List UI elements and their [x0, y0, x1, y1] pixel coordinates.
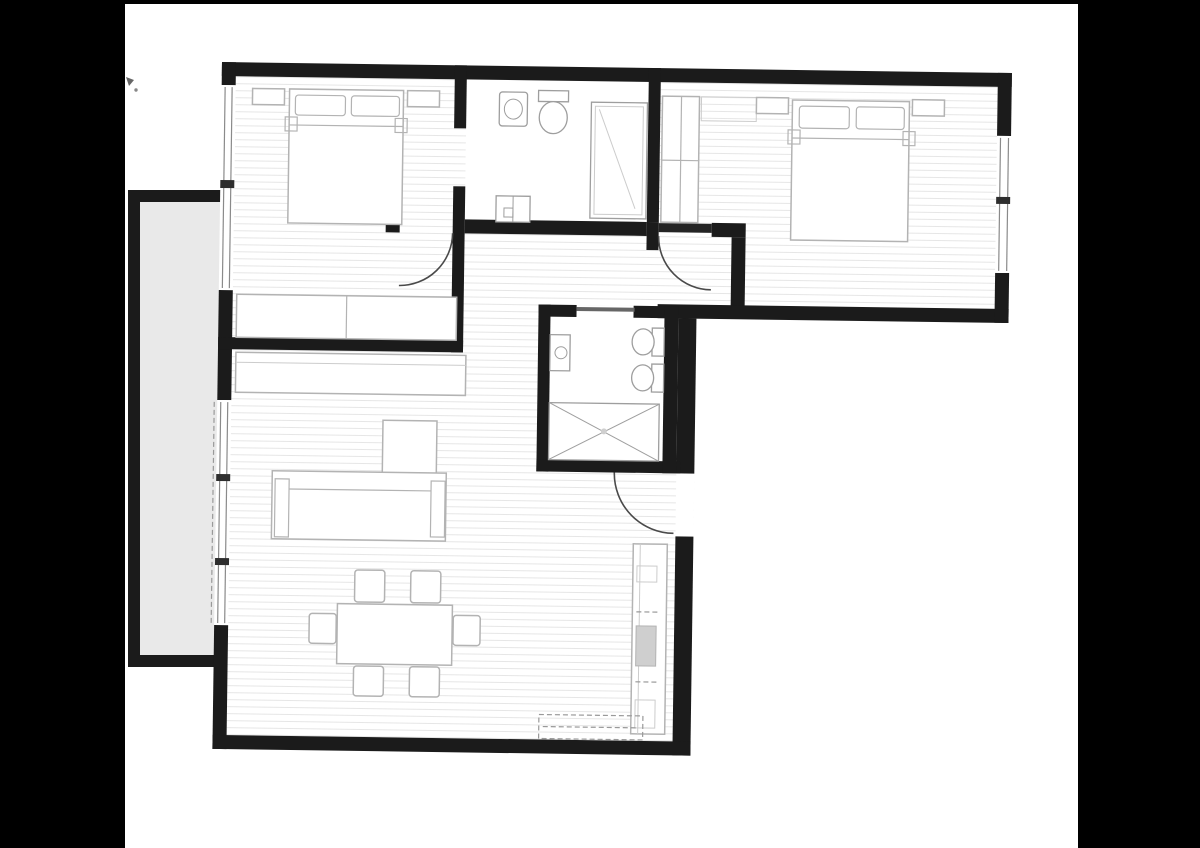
wall-bath1-bed2 [647, 68, 661, 222]
bedroom2-window [995, 136, 1011, 273]
chair [309, 613, 336, 643]
wall-right-a [997, 73, 1012, 136]
bedroom2-door-leaf [659, 223, 712, 233]
door-jamb-bed2 [646, 222, 658, 250]
balcony [128, 190, 222, 667]
wall-east-upper [676, 318, 696, 473]
wall-east-lower [672, 536, 693, 755]
entrance-opening [675, 473, 694, 536]
chair [453, 615, 480, 645]
wall-bed1-bath1-a [454, 65, 467, 128]
washbasin [499, 92, 527, 126]
dining-table [337, 604, 453, 666]
wall-right-b [994, 273, 1009, 323]
nightstand-right [912, 100, 944, 116]
kitchen-sink [636, 626, 657, 666]
bathroom2-sliding-door-leaf [577, 307, 635, 312]
bed [791, 100, 910, 242]
nightstand-left [252, 88, 284, 104]
chair [354, 570, 384, 602]
floor-plan-image [0, 0, 1200, 848]
shower-tray [548, 403, 659, 462]
balcony-floor [140, 202, 222, 655]
bidet-bowl [631, 365, 653, 391]
balcony-wall-bottom [128, 655, 222, 667]
hallway-east-floor [658, 236, 732, 305]
balcony-wall-top [128, 190, 222, 202]
shower-enclosure [590, 102, 648, 219]
bedroom1-window [219, 85, 236, 290]
sofa-body [271, 471, 446, 541]
chair [409, 667, 439, 697]
screenshot-letterbox [0, 0, 1200, 848]
toilet-cistern [538, 90, 568, 101]
wall-left-a [222, 62, 236, 85]
toilet-bowl [632, 329, 654, 355]
chair [410, 571, 440, 603]
wall-left-c [212, 625, 228, 749]
sofa-chaise [382, 420, 437, 477]
balcony-wall-left [128, 190, 140, 667]
nightstand-left [756, 97, 788, 113]
wall-bath1-bottom [465, 219, 647, 236]
chair [353, 666, 383, 696]
toilet-bowl [539, 101, 567, 133]
sideboard [235, 352, 466, 395]
nightstand-right [407, 91, 439, 107]
wall-hall-east [712, 223, 746, 237]
